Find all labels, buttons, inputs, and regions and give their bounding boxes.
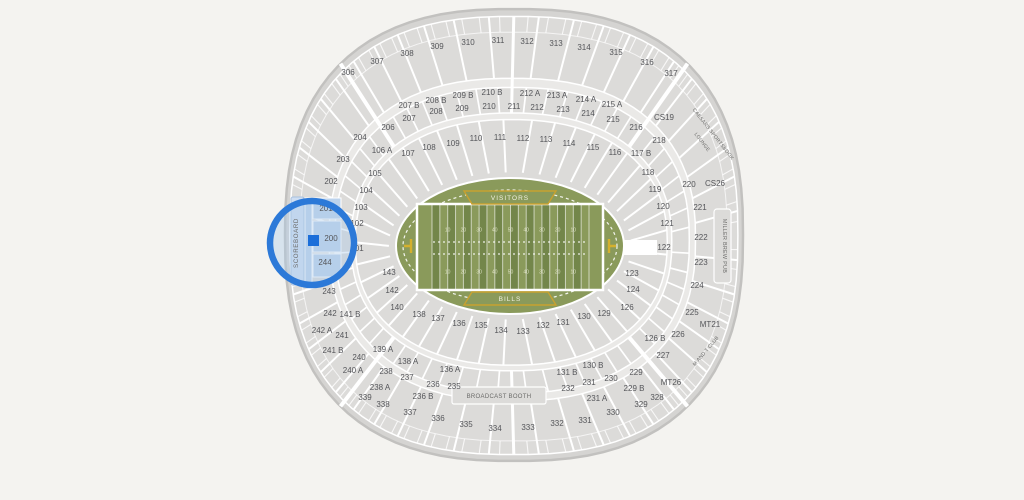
section-132[interactable]: 132 — [536, 321, 550, 330]
section-108[interactable]: 108 — [422, 143, 436, 152]
section-231[interactable]: 231 — [582, 378, 596, 387]
yard-stripe — [573, 204, 581, 290]
section-106a[interactable]: 106 A — [372, 146, 393, 155]
landmark-miller-brew-pub: MILLER BREW PUB — [721, 219, 727, 273]
section-334[interactable]: 334 — [488, 424, 502, 433]
section-229[interactable]: 229 — [629, 368, 643, 377]
section-236b[interactable]: 236 B — [413, 392, 434, 401]
section-309[interactable]: 309 — [430, 42, 444, 51]
section-133[interactable]: 133 — [516, 327, 530, 336]
visitors-label: VISITORS — [491, 195, 529, 202]
section-124[interactable]: 124 — [626, 285, 640, 294]
section-224[interactable]: 224 — [690, 281, 704, 290]
yard-number: 30 — [476, 228, 482, 234]
yard-stripe — [432, 204, 440, 290]
section-mt21[interactable]: MT21 — [700, 320, 721, 329]
section-210[interactable]: 210 — [482, 102, 496, 111]
section-117b[interactable]: 117 B — [631, 149, 651, 158]
section-126b[interactable]: 126 B — [645, 334, 666, 343]
yard-stripe — [565, 204, 573, 290]
section-123[interactable]: 123 — [625, 269, 639, 278]
section-215[interactable]: 215 — [606, 115, 620, 124]
yard-number: 20 — [461, 270, 467, 276]
section-236[interactable]: 236 — [426, 380, 440, 389]
section-213a[interactable]: 213 A — [547, 91, 568, 100]
yard-stripe — [463, 204, 471, 290]
section-142[interactable]: 142 — [385, 286, 399, 295]
yard-number: 10 — [571, 270, 577, 276]
section-141b[interactable]: 141 B — [340, 310, 361, 319]
section-104[interactable]: 104 — [359, 186, 373, 195]
section-207b[interactable]: 207 B — [399, 101, 420, 110]
section-308[interactable]: 308 — [400, 49, 414, 58]
section-114[interactable]: 114 — [563, 139, 576, 148]
landmark-broadcast-booth: BROADCAST BOOTH — [467, 394, 532, 400]
yard-number: 20 — [461, 228, 467, 234]
section-204[interactable]: 204 — [353, 133, 367, 142]
section-107[interactable]: 107 — [401, 149, 415, 158]
section-129[interactable]: 129 — [597, 309, 611, 318]
section-232[interactable]: 232 — [561, 384, 575, 393]
section-131b[interactable]: 131 B — [557, 368, 578, 377]
section-140[interactable]: 140 — [390, 303, 404, 312]
section-310[interactable]: 310 — [461, 38, 475, 47]
section-208b[interactable]: 208 B — [426, 96, 447, 105]
section-241b[interactable]: 241 B — [323, 346, 344, 355]
section-216[interactable]: 216 — [629, 123, 643, 132]
yard-stripe — [495, 204, 503, 290]
section-221[interactable]: 221 — [693, 203, 707, 212]
yard-number: 30 — [539, 270, 545, 276]
section-218[interactable]: 218 — [652, 136, 666, 145]
section-331[interactable]: 331 — [578, 416, 592, 425]
section-231a[interactable]: 231 A — [587, 394, 608, 403]
section-242[interactable]: 242 — [323, 309, 337, 318]
bills-label: BILLS — [499, 296, 522, 303]
section-229b[interactable]: 229 B — [624, 384, 645, 393]
section-213[interactable]: 213 — [556, 105, 570, 114]
yard-stripe — [440, 204, 448, 290]
yard-stripe — [471, 204, 479, 290]
yard-number: 10 — [445, 228, 451, 234]
section-119[interactable]: 119 — [649, 185, 662, 194]
section-206[interactable]: 206 — [381, 123, 395, 132]
section-130[interactable]: 130 — [577, 312, 591, 321]
section-109[interactable]: 109 — [446, 139, 460, 148]
section-339[interactable]: 339 — [358, 393, 372, 402]
section-131[interactable]: 131 — [556, 318, 570, 327]
section-139a[interactable]: 139 A — [373, 345, 394, 354]
yard-stripe — [487, 204, 495, 290]
section-143[interactable]: 143 — [382, 268, 396, 277]
yard-stripe — [534, 204, 542, 290]
yard-number: 30 — [476, 270, 482, 276]
section-126[interactable]: 126 — [620, 303, 634, 312]
yard-stripe — [518, 204, 526, 290]
section-116[interactable]: 116 — [609, 148, 622, 157]
section-311[interactable]: 311 — [492, 36, 505, 45]
section-130b[interactable]: 130 B — [583, 361, 604, 370]
section-138a[interactable]: 138 A — [398, 357, 419, 366]
yard-stripe — [511, 204, 519, 290]
yard-number: 50 — [508, 270, 514, 276]
yard-stripe — [448, 204, 456, 290]
yard-stripe — [503, 204, 511, 290]
section-338[interactable]: 338 — [376, 400, 390, 409]
section-222[interactable]: 222 — [694, 233, 708, 242]
section-329[interactable]: 329 — [634, 400, 648, 409]
section-335[interactable]: 335 — [459, 420, 473, 429]
section-242a[interactable]: 242 A — [312, 326, 333, 335]
section-cs19[interactable]: CS19 — [654, 113, 675, 122]
aisle-line — [500, 441, 501, 455]
yard-number: 10 — [571, 228, 577, 234]
section-312[interactable]: 312 — [520, 37, 534, 46]
section-317[interactable]: 317 — [664, 69, 678, 78]
section-240a[interactable]: 240 A — [343, 366, 364, 375]
yard-number: 20 — [555, 270, 561, 276]
section-220[interactable]: 220 — [682, 180, 696, 189]
section-137[interactable]: 137 — [431, 314, 445, 323]
section-230[interactable]: 230 — [604, 374, 618, 383]
section-113[interactable]: 113 — [540, 135, 553, 144]
football-field: 101020203030404050504040303020201010VISI… — [396, 178, 624, 314]
yard-number: 30 — [539, 228, 545, 234]
section-103[interactable]: 103 — [354, 203, 368, 212]
section-135[interactable]: 135 — [474, 321, 488, 330]
section-138[interactable]: 138 — [412, 310, 426, 319]
section-212[interactable]: 212 — [530, 103, 544, 112]
yard-stripe — [558, 204, 566, 290]
section-330[interactable]: 330 — [606, 408, 620, 417]
section-313[interactable]: 313 — [549, 39, 563, 48]
landmark-scoreboard: SCOREBOARD — [293, 218, 300, 268]
selected-seat-marker[interactable] — [308, 235, 319, 246]
section-328[interactable]: 328 — [650, 393, 664, 402]
section-118[interactable]: 118 — [642, 168, 655, 177]
section-cs26[interactable]: CS26 — [705, 179, 726, 188]
section-337[interactable]: 337 — [403, 408, 417, 417]
section-121[interactable]: 121 — [660, 219, 674, 228]
section-333[interactable]: 333 — [521, 423, 535, 432]
section-235[interactable]: 235 — [447, 382, 461, 391]
section-315[interactable]: 315 — [609, 48, 623, 57]
section-mt26[interactable]: MT26 — [661, 378, 682, 387]
yard-number: 50 — [508, 228, 514, 234]
aisle-line — [500, 17, 501, 33]
section-214[interactable]: 214 — [581, 109, 595, 118]
section-202[interactable]: 202 — [324, 177, 338, 186]
section-240[interactable]: 240 — [352, 353, 366, 362]
section-207[interactable]: 207 — [402, 114, 416, 123]
section-136[interactable]: 136 — [452, 319, 466, 328]
section-215a[interactable]: 215 A — [602, 100, 623, 109]
section-122[interactable]: 122 — [657, 243, 671, 252]
yard-stripe — [526, 204, 534, 290]
section-208[interactable]: 208 — [429, 107, 443, 116]
section-238[interactable]: 238 — [379, 367, 393, 376]
section-307[interactable]: 307 — [370, 57, 384, 66]
aisle-line — [672, 252, 690, 253]
section-136a[interactable]: 136 A — [440, 365, 461, 374]
section-336[interactable]: 336 — [431, 414, 445, 423]
section-237[interactable]: 237 — [400, 373, 414, 382]
section-203[interactable]: 203 — [336, 155, 350, 164]
yard-stripe — [456, 204, 464, 290]
section-105[interactable]: 105 — [368, 169, 382, 178]
section-115[interactable]: 115 — [587, 143, 600, 152]
yard-number: 10 — [445, 270, 451, 276]
yard-number: 40 — [523, 270, 529, 276]
section-200[interactable]: 200 — [324, 234, 338, 243]
yard-number: 40 — [492, 228, 498, 234]
section-316[interactable]: 316 — [640, 58, 654, 67]
section-209b[interactable]: 209 B — [453, 91, 474, 100]
seat-map-stage: 101020203030404050504040303020201010VISI… — [0, 0, 1024, 500]
section-210b[interactable]: 210 B — [482, 88, 503, 97]
end-zone-left — [417, 204, 432, 290]
section-214a[interactable]: 214 A — [576, 95, 597, 104]
yard-stripe — [581, 204, 589, 290]
section-332[interactable]: 332 — [550, 419, 564, 428]
yard-stripe — [542, 204, 550, 290]
section-111[interactable]: 111 — [494, 133, 507, 142]
section-306[interactable]: 306 — [341, 68, 355, 77]
section-238a[interactable]: 238 A — [370, 383, 391, 392]
end-zone-right — [589, 204, 603, 290]
stadium-seat-map[interactable]: 101020203030404050504040303020201010VISI… — [0, 0, 1024, 500]
section-120[interactable]: 120 — [656, 202, 670, 211]
yard-number: 40 — [523, 228, 529, 234]
section-134[interactable]: 134 — [494, 326, 508, 335]
section-314[interactable]: 314 — [577, 43, 591, 52]
yard-stripe — [479, 204, 487, 290]
yard-number: 20 — [555, 228, 561, 234]
section-110[interactable]: 110 — [470, 134, 483, 143]
yard-stripe — [550, 204, 558, 290]
section-223[interactable]: 223 — [694, 258, 708, 267]
section-241[interactable]: 241 — [335, 331, 349, 340]
section-244[interactable]: 244 — [318, 258, 332, 267]
section-243[interactable]: 243 — [322, 287, 336, 296]
section-227[interactable]: 227 — [656, 351, 670, 360]
section-212a[interactable]: 212 A — [520, 89, 541, 98]
section-209[interactable]: 209 — [455, 104, 469, 113]
section-225[interactable]: 225 — [685, 308, 699, 317]
section-211[interactable]: 211 — [508, 102, 521, 111]
yard-number: 40 — [492, 270, 498, 276]
section-226[interactable]: 226 — [671, 330, 685, 339]
section-112[interactable]: 112 — [517, 134, 530, 143]
